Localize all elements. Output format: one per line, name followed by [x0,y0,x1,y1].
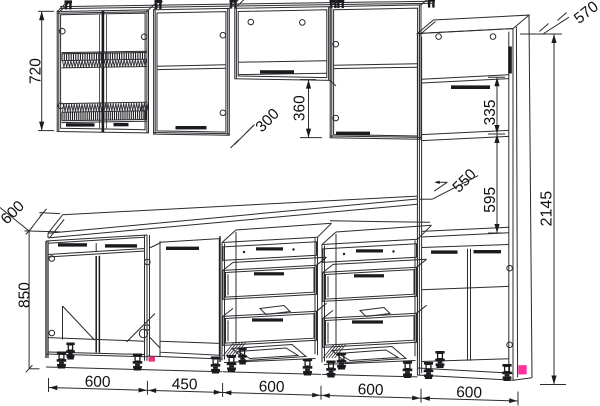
svg-text:595: 595 [482,187,499,213]
svg-text:600: 600 [456,384,483,402]
svg-text:720: 720 [28,58,45,84]
svg-text:335: 335 [482,99,499,125]
svg-text:2145: 2145 [539,191,556,227]
svg-text:600: 600 [258,378,285,396]
svg-text:360: 360 [291,95,308,121]
svg-text:600: 600 [357,381,384,399]
svg-text:450: 450 [171,376,198,394]
svg-text:600: 600 [84,373,111,391]
svg-text:850: 850 [17,282,34,308]
